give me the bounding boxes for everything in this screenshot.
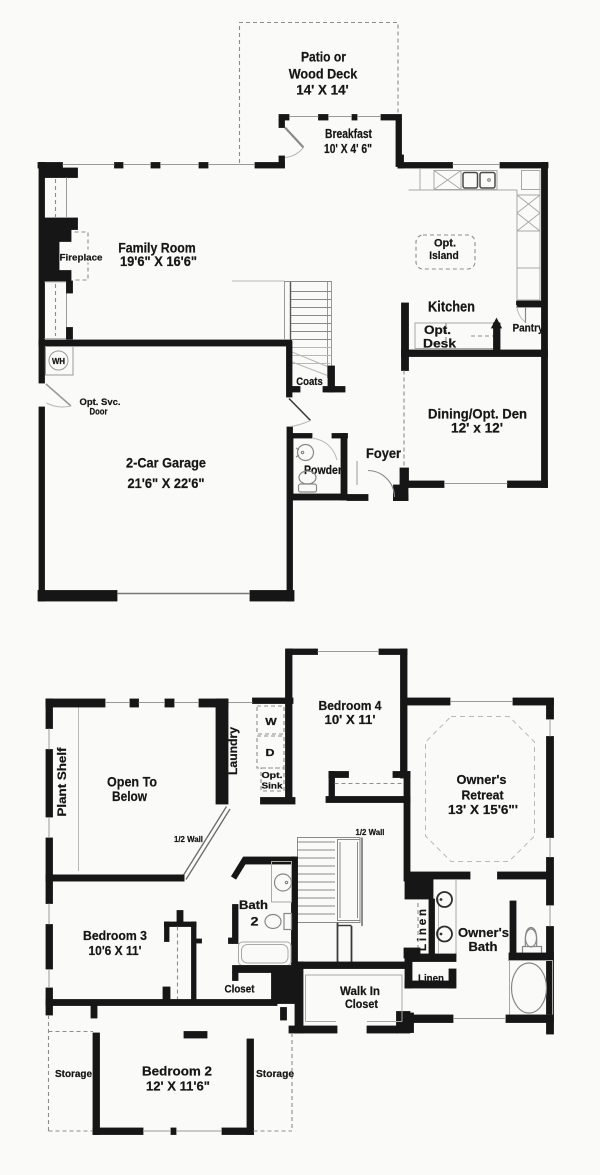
svg-text:10'6 X 11': 10'6 X 11': [89, 943, 142, 958]
svg-text:14' X 14': 14' X 14': [296, 83, 349, 98]
svg-text:W: W: [265, 716, 277, 728]
svg-text:Storage: Storage: [256, 1068, 294, 1080]
svg-text:Wood Deck: Wood Deck: [289, 67, 358, 82]
svg-text:Breakfast: Breakfast: [325, 126, 373, 141]
svg-text:Opt.: Opt.: [262, 771, 283, 780]
svg-text:Kitchen: Kitchen: [428, 299, 475, 316]
svg-text:Bedroom 2: Bedroom 2: [142, 1064, 212, 1079]
svg-text:2-Car Garage: 2-Car Garage: [126, 455, 206, 471]
svg-text:Closet: Closet: [225, 984, 255, 996]
svg-text:12' X 11'6": 12' X 11'6": [146, 1079, 210, 1094]
svg-text:Linen: Linen: [417, 909, 429, 951]
svg-text:Pantry: Pantry: [513, 323, 545, 335]
svg-text:Bath: Bath: [469, 939, 498, 954]
svg-text:Owner's: Owner's: [457, 772, 507, 787]
svg-text:WH: WH: [52, 357, 65, 366]
svg-text:21'6" X 22'6": 21'6" X 22'6": [128, 475, 205, 491]
svg-text:10' X 4' 6": 10' X 4' 6": [324, 141, 372, 156]
svg-text:Open To: Open To: [107, 775, 157, 790]
svg-text:Sink: Sink: [262, 782, 284, 791]
svg-text:Bedroom 3: Bedroom 3: [83, 928, 147, 943]
svg-text:Linen: Linen: [418, 973, 444, 985]
svg-text:Door: Door: [90, 407, 108, 418]
svg-text:Plant Shelf: Plant Shelf: [57, 747, 69, 816]
svg-text:Retreat: Retreat: [462, 788, 505, 803]
svg-text:Fireplace: Fireplace: [60, 253, 103, 264]
svg-text:Dining/Opt. Den: Dining/Opt. Den: [428, 407, 527, 422]
svg-text:1/2 Wall: 1/2 Wall: [174, 834, 203, 844]
svg-text:Bath: Bath: [239, 900, 268, 912]
svg-text:Island: Island: [429, 250, 459, 262]
svg-text:1/2 Wall: 1/2 Wall: [356, 827, 385, 837]
svg-text:Bedroom 4: Bedroom 4: [319, 698, 383, 713]
svg-text:Below: Below: [112, 789, 147, 804]
svg-text:12' x 12': 12' x 12': [451, 421, 503, 436]
svg-text:Opt.: Opt.: [434, 238, 456, 250]
svg-text:Coats: Coats: [296, 376, 323, 388]
svg-text:Foyer: Foyer: [366, 446, 402, 461]
svg-text:Patio or: Patio or: [301, 50, 347, 65]
svg-text:Desk: Desk: [423, 337, 456, 351]
svg-text:Laundry: Laundry: [228, 726, 240, 775]
svg-text:2: 2: [251, 917, 259, 929]
svg-text:Opt.: Opt.: [424, 323, 451, 337]
svg-text:19'6" X 16'6": 19'6" X 16'6": [120, 253, 197, 269]
svg-text:Walk In: Walk In: [340, 986, 380, 998]
svg-text:13' X 15'6"': 13' X 15'6"': [448, 802, 518, 817]
svg-text:10' X 11': 10' X 11': [325, 712, 376, 727]
svg-text:Storage: Storage: [55, 1068, 92, 1080]
svg-text:Closet: Closet: [345, 999, 378, 1011]
svg-text:Owner's: Owner's: [458, 925, 509, 940]
svg-text:D: D: [266, 747, 275, 759]
